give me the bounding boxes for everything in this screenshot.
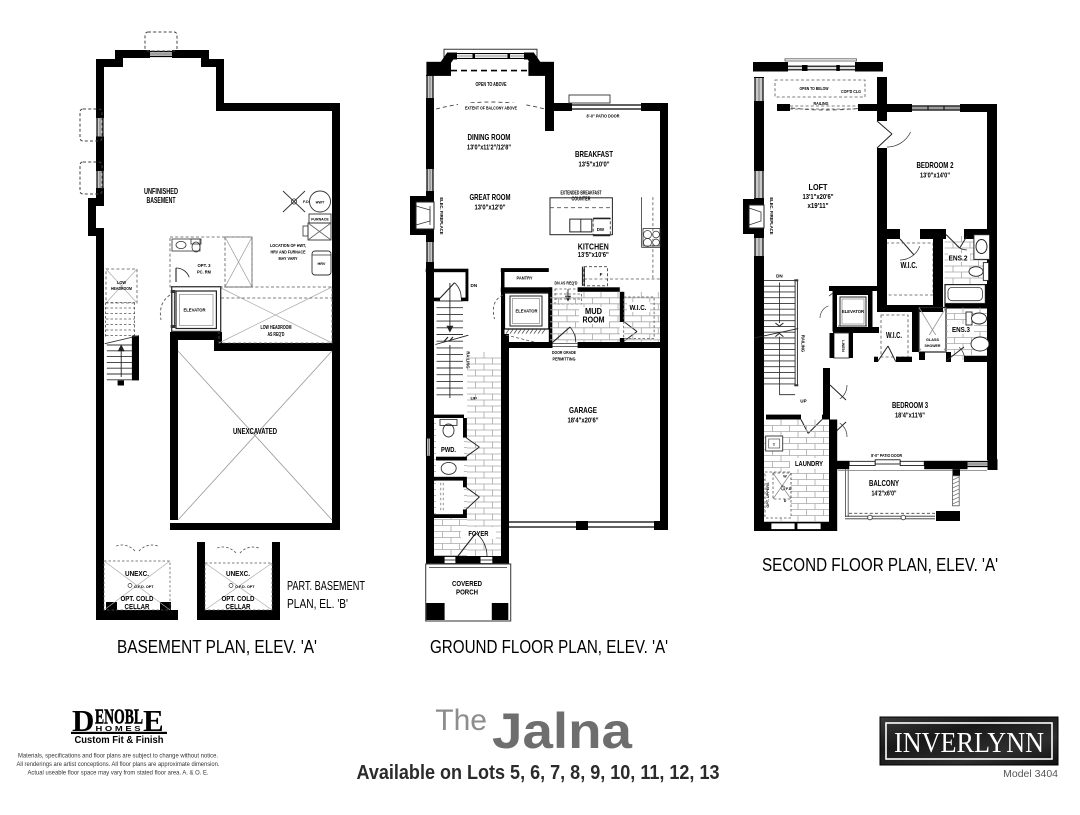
- svg-text:OPT. COLD: OPT. COLD: [222, 596, 255, 603]
- svg-text:W.I.C.: W.I.C.: [630, 305, 647, 312]
- svg-text:DN AS REQ'D: DN AS REQ'D: [555, 281, 579, 286]
- svg-text:PORCH: PORCH: [456, 590, 478, 597]
- svg-text:UNEXCAVATED: UNEXCAVATED: [233, 426, 277, 436]
- svg-text:COF'D CLG: COF'D CLG: [841, 89, 861, 94]
- svg-text:RAILING: RAILING: [466, 351, 471, 368]
- svg-text:BALCONY: BALCONY: [869, 478, 899, 488]
- svg-text:AS REQ'D: AS REQ'D: [268, 332, 285, 338]
- svg-text:OPEN TO ABOVE: OPEN TO ABOVE: [476, 82, 507, 88]
- svg-text:MAY VARY: MAY VARY: [279, 256, 299, 262]
- svg-text:All renderings are artist conc: All renderings are artist conceptions. A…: [17, 761, 220, 768]
- svg-text:DW: DW: [597, 227, 605, 232]
- svg-text:OPT. COLD: OPT. COLD: [121, 596, 154, 603]
- svg-text:COVERED: COVERED: [452, 581, 482, 588]
- svg-text:ELEC. FIREPLACE: ELEC. FIREPLACE: [439, 197, 444, 234]
- svg-text:ELEC. FIREPLACE: ELEC. FIREPLACE: [769, 197, 774, 234]
- svg-text:PERMITTING: PERMITTING: [553, 357, 576, 362]
- svg-text:Jalna: Jalna: [492, 703, 633, 759]
- svg-text:EXTENT OF BALCONY ABOVE: EXTENT OF BALCONY ABOVE: [465, 106, 517, 111]
- svg-text:H O M E S: H O M E S: [96, 726, 141, 733]
- svg-text:W.I.C.: W.I.C.: [886, 331, 902, 340]
- svg-text:ENS.2: ENS.2: [949, 256, 968, 263]
- svg-text:W.I.C.: W.I.C.: [901, 261, 918, 270]
- svg-text:Actual useable floor space may: Actual useable floor space may vary from…: [28, 770, 209, 777]
- svg-text:ELEVATOR: ELEVATOR: [515, 309, 537, 314]
- svg-text:Available on Lots 5, 6, 7, 8,: Available on Lots 5, 6, 7, 8, 9, 10, 11,…: [357, 762, 720, 784]
- svg-text:18'4"x20'6": 18'4"x20'6": [568, 418, 599, 425]
- svg-text:RAILING: RAILING: [814, 101, 829, 106]
- svg-text:O.F.D. OPT: O.F.D. OPT: [235, 585, 255, 589]
- svg-text:F.D.: F.D.: [786, 487, 792, 491]
- svg-text:LINEN: LINEN: [841, 340, 845, 352]
- svg-text:FURNACE: FURNACE: [311, 218, 329, 222]
- svg-text:DOOR GRADE: DOOR GRADE: [552, 350, 576, 355]
- svg-text:DN: DN: [471, 283, 478, 288]
- svg-text:DN: DN: [776, 274, 783, 279]
- svg-text:UNEXC.: UNEXC.: [125, 571, 149, 578]
- svg-text:Materials, specifications and: Materials, specifications and floor plan…: [18, 753, 218, 760]
- svg-text:LOW: LOW: [117, 280, 126, 285]
- svg-text:13'0"x12'0": 13'0"x12'0": [475, 205, 506, 212]
- svg-text:OPT. 3: OPT. 3: [198, 263, 211, 269]
- svg-text:PWD.: PWD.: [441, 447, 456, 454]
- svg-text:8'-0" PATIO DOOR: 8'-0" PATIO DOOR: [871, 453, 903, 458]
- svg-text:Custom Fit & Finish: Custom Fit & Finish: [75, 735, 164, 746]
- svg-text:HRV: HRV: [318, 262, 326, 266]
- svg-text:HEADROOM: HEADROOM: [111, 286, 132, 291]
- svg-text:LOFT: LOFT: [809, 182, 829, 192]
- svg-text:UNFINISHED: UNFINISHED: [144, 187, 178, 196]
- svg-text:CELLAR: CELLAR: [125, 604, 150, 611]
- svg-text:FOYER: FOYER: [468, 531, 488, 538]
- svg-text:BEDROOM 2: BEDROOM 2: [917, 160, 954, 170]
- svg-text:RAILING: RAILING: [801, 335, 806, 352]
- svg-text:KITCHEN: KITCHEN: [578, 242, 609, 252]
- svg-text:DINING ROOM: DINING ROOM: [468, 132, 511, 142]
- svg-text:BASEMENT: BASEMENT: [147, 196, 176, 205]
- svg-text:PLAN, EL. 'B': PLAN, EL. 'B': [287, 597, 348, 611]
- svg-text:UP: UP: [800, 399, 806, 404]
- svg-text:D: D: [784, 499, 787, 503]
- svg-text:HWT: HWT: [316, 201, 325, 205]
- svg-text:W: W: [783, 475, 787, 479]
- svg-text:18'4"x11'6": 18'4"x11'6": [895, 413, 925, 420]
- svg-text:x19'11": x19'11": [808, 203, 829, 210]
- svg-text:LOW HEADROOM: LOW HEADROOM: [261, 325, 292, 331]
- svg-text:HRV AND FURNACE: HRV AND FURNACE: [271, 250, 307, 256]
- svg-text:13'0"x11'2"/12'8": 13'0"x11'2"/12'8": [467, 145, 511, 152]
- svg-text:LOCATION OF HWT,: LOCATION OF HWT,: [270, 243, 307, 249]
- svg-text:GROUND FLOOR PLAN, ELEV. 'A': GROUND FLOOR PLAN, ELEV. 'A': [430, 637, 668, 657]
- svg-text:PANTRY: PANTRY: [517, 276, 533, 281]
- svg-text:14'2"x6'0": 14'2"x6'0": [872, 491, 897, 498]
- svg-text:13'0"x14'0": 13'0"x14'0": [920, 173, 950, 180]
- svg-text:GARAGE: GARAGE: [569, 405, 597, 415]
- svg-text:ELEVATOR: ELEVATOR: [183, 308, 205, 313]
- svg-text:OPEN TO BELOW: OPEN TO BELOW: [800, 86, 829, 91]
- svg-text:GREAT ROOM: GREAT ROOM: [470, 192, 511, 202]
- svg-text:LAUNDRY: LAUNDRY: [795, 459, 823, 468]
- svg-text:13'5"x10'6": 13'5"x10'6": [578, 252, 609, 259]
- svg-text:ROOM: ROOM: [583, 315, 605, 325]
- svg-text:8'-0" PATIO DOOR: 8'-0" PATIO DOOR: [587, 114, 621, 119]
- svg-text:The: The: [435, 704, 487, 737]
- svg-text:CELLAR: CELLAR: [226, 604, 251, 611]
- svg-text:13'1"x20'6": 13'1"x20'6": [803, 194, 834, 201]
- svg-text:GLASS: GLASS: [926, 337, 939, 342]
- svg-text:SECOND FLOOR PLAN, ELEV. 'A': SECOND FLOOR PLAN, ELEV. 'A': [762, 555, 998, 575]
- svg-text:F: F: [600, 272, 603, 277]
- svg-text:Model 3404: Model 3404: [1003, 768, 1058, 780]
- svg-text:ENS.3: ENS.3: [952, 327, 970, 334]
- svg-text:SHOWER: SHOWER: [925, 343, 941, 348]
- svg-text:PART. BASEMENT: PART. BASEMENT: [287, 579, 365, 593]
- svg-text:13'5"x10'0": 13'5"x10'0": [579, 162, 610, 169]
- svg-text:O.F.D. OPT: O.F.D. OPT: [134, 585, 154, 589]
- svg-text:BEDROOM 3: BEDROOM 3: [892, 400, 928, 410]
- svg-text:BASEMENT PLAN, ELEV. 'A': BASEMENT PLAN, ELEV. 'A': [117, 637, 317, 657]
- svg-text:OPT. UPPERS: OPT. UPPERS: [766, 482, 770, 508]
- svg-text:INVERLYNN: INVERLYNN: [894, 727, 1044, 759]
- svg-text:ELEVATOR: ELEVATOR: [842, 309, 864, 314]
- svg-text:PC. RM: PC. RM: [197, 270, 211, 276]
- svg-text:UNEXC.: UNEXC.: [226, 571, 250, 578]
- svg-text:F.D.: F.D.: [303, 200, 310, 204]
- svg-text:BREAKFAST: BREAKFAST: [575, 149, 614, 159]
